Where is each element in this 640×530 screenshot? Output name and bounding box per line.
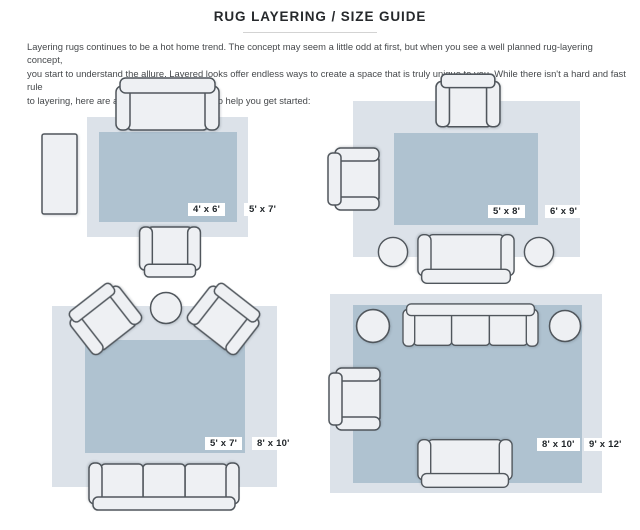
outer-rug-size-label: 9' x 12' [584, 438, 627, 451]
sofa [396, 303, 545, 348]
title-divider [243, 32, 377, 33]
sofa [115, 77, 220, 131]
armchair [327, 147, 381, 211]
inner-rug-size-label: 5' x 8' [488, 205, 525, 218]
ottoman [377, 236, 409, 268]
rug-size-guide-page: RUG LAYERING / SIZE GUIDE Layering rugs … [0, 0, 640, 530]
inner-rug-size-label: 4' x 6' [188, 203, 225, 216]
armchair [135, 225, 205, 278]
loveseat [417, 438, 513, 489]
inner-rug-size-label: 5' x 7' [205, 437, 242, 450]
outer-rug-size-label: 5' x 7' [244, 203, 281, 216]
ottoman [548, 309, 582, 343]
ottoman [523, 236, 555, 268]
armchair [435, 73, 501, 129]
inner-rug-size-label: 8' x 10' [537, 438, 580, 451]
outer-rug-size-label: 6' x 9' [545, 205, 582, 218]
ottoman [355, 308, 391, 344]
console-table [41, 133, 78, 215]
intro-line-1: Layering rugs continues to be a hot home… [27, 40, 627, 67]
sofa [88, 460, 240, 512]
page-title: RUG LAYERING / SIZE GUIDE [0, 9, 640, 24]
armchair [328, 367, 382, 431]
outer-rug-size-label: 8' x 10' [252, 437, 295, 450]
sofa [417, 232, 515, 286]
ottoman [149, 291, 183, 325]
